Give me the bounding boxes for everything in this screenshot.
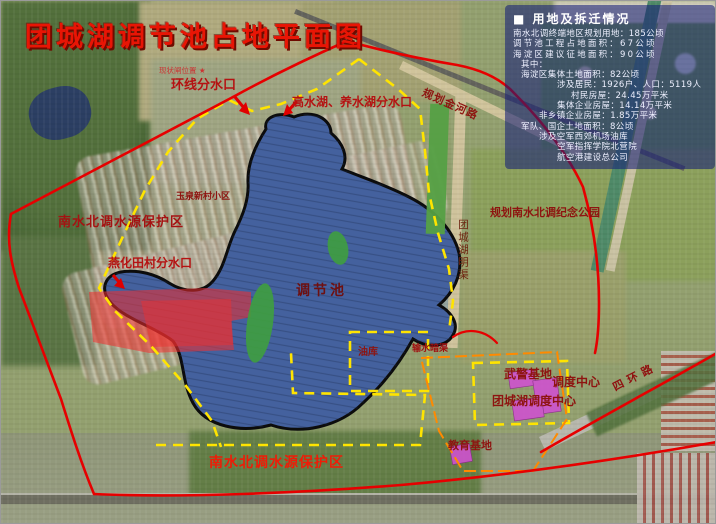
label-baohuqu-south: 南水北调水源保护区 <box>209 456 344 471</box>
legend-line: 其中： <box>521 60 707 70</box>
legend-line: 南水北调终端地区规划用地：185公顷 <box>513 29 707 39</box>
label-gaoshuihu-fenshuikou: 高水湖、养水湖分水口 <box>292 96 412 109</box>
legend-line: 海淀区集体土地面积：82公顷 <box>521 70 707 80</box>
red-boundary-south <box>94 442 716 495</box>
label-tuanchenghu-diaodu-center: 团城湖调度中心 <box>492 395 576 408</box>
label-baohuqu-nw: 南水北调水源保护区 <box>58 216 184 230</box>
label-yuquan-xiaoqu: 玉泉新村小区 <box>176 193 230 202</box>
label-shushui-anqu: 输水暗渠 <box>412 345 448 354</box>
planning-map-canvas: 团城湖调节池占地平面图 现状闸位置 ★ 环线分水口 高水湖、养水湖分水口 规划金… <box>0 0 716 524</box>
legend-line: 军队、国企土地面积：8公顷 <box>521 122 707 132</box>
label-jinian-park: 规划南水北调纪念公园 <box>490 207 600 219</box>
legend-line: 调节池工程占地面积：67公顷 <box>513 39 707 49</box>
label-yanhua-fenshuikou: 燕化田村分水口 <box>108 257 192 270</box>
label-jiaoyu-jidi: 教育基地 <box>448 440 492 452</box>
legend-line: 涉及居民：1926户、人口：5119人 <box>557 80 707 90</box>
label-tiaojiechi: 调节池 <box>296 284 347 299</box>
legend-line: 涉及空军西郊机场油库 <box>539 132 707 142</box>
legend-line: 海淀区建议征地面积：90公顷 <box>513 50 707 60</box>
legend-title-text: 用地及拆迁情况 <box>533 12 631 26</box>
demolition-red-area-inner <box>141 299 233 347</box>
label-wujing-jidi: 武警基地 <box>504 368 552 381</box>
legend-line: 非乡镇企业房屋：1.85万平米 <box>539 111 707 121</box>
legend-title: ■ 用地及拆迁情况 <box>513 10 707 27</box>
legend-line: 村民房屋：24.45万平米 <box>571 91 707 101</box>
label-site-marker: 现状闸位置 ★ <box>159 67 206 75</box>
page-title: 团城湖调节池占地平面图 <box>25 15 366 54</box>
legend-bullet-icon: ■ <box>513 12 526 26</box>
legend-line: 航空港建设总公司 <box>557 153 707 163</box>
label-mingqu: 团城湖明渠 <box>457 219 468 282</box>
label-huanxian-fenshuikou: 环线分水口 <box>171 79 236 93</box>
red-conduit-curve <box>453 331 497 343</box>
label-diaodu-center: 调度中心 <box>552 376 600 389</box>
legend-line: 集体企业房屋：14.14万平米 <box>557 101 707 111</box>
regulation-pond-texture <box>105 114 460 429</box>
label-youku: 油库 <box>358 348 378 359</box>
green-canal-strip <box>426 104 450 235</box>
legend-line: 空军指挥学院北营院 <box>557 142 707 152</box>
legend-panel: ■ 用地及拆迁情况 南水北调终端地区规划用地：185公顷 调节池工程占地面积：6… <box>505 5 715 169</box>
